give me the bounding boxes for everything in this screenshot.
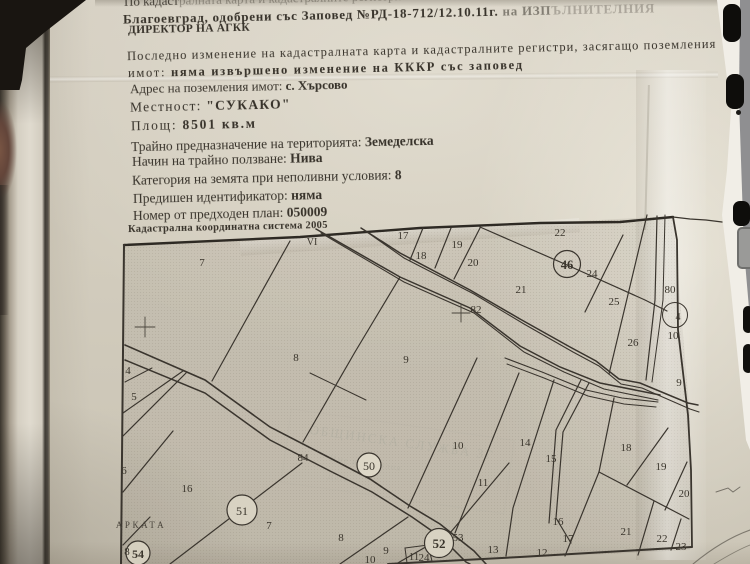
svg-text:10: 10 <box>453 440 465 452</box>
svg-text:4: 4 <box>125 365 131 377</box>
svg-text:17: 17 <box>398 230 410 242</box>
svg-text:21: 21 <box>621 526 632 538</box>
svg-text:19: 19 <box>452 239 464 251</box>
svg-text:8: 8 <box>124 546 130 558</box>
svg-text:19: 19 <box>656 461 668 473</box>
svg-text:8: 8 <box>293 352 299 364</box>
svg-text:20: 20 <box>468 257 480 269</box>
svg-text:25: 25 <box>609 296 621 308</box>
svg-text:46: 46 <box>561 258 574 272</box>
svg-text:11: 11 <box>409 551 420 563</box>
svg-text:18: 18 <box>416 250 428 262</box>
svg-text:9: 9 <box>676 377 682 389</box>
svg-text:17: 17 <box>563 533 575 545</box>
svg-text:9: 9 <box>403 354 409 366</box>
svg-text:АРКАТА: АРКАТА <box>116 520 166 530</box>
svg-text:15: 15 <box>546 453 558 465</box>
svg-text:24: 24 <box>587 268 599 280</box>
svg-text:VI: VI <box>307 237 318 248</box>
svg-text:53: 53 <box>453 532 465 544</box>
svg-text:82: 82 <box>471 304 482 316</box>
svg-text:20: 20 <box>679 488 691 500</box>
svg-text:11: 11 <box>478 477 489 489</box>
svg-text:6: 6 <box>121 465 127 477</box>
svg-text:10: 10 <box>365 554 377 564</box>
svg-text:8: 8 <box>338 532 344 544</box>
svg-text:10: 10 <box>668 330 680 342</box>
svg-text:80: 80 <box>665 284 677 296</box>
svg-text:4: 4 <box>676 312 681 323</box>
svg-text:13: 13 <box>488 544 500 556</box>
svg-text:22: 22 <box>657 533 668 545</box>
svg-text:52: 52 <box>433 536 446 551</box>
svg-text:18: 18 <box>621 442 633 454</box>
svg-text:12: 12 <box>537 547 548 559</box>
svg-text:22: 22 <box>555 227 566 239</box>
svg-text:54: 54 <box>132 547 144 561</box>
svg-text:26: 26 <box>628 337 640 349</box>
svg-text:16: 16 <box>182 483 194 495</box>
svg-text:84: 84 <box>298 452 310 464</box>
svg-text:Дата: Дата <box>327 471 350 484</box>
svg-text:7: 7 <box>199 257 205 269</box>
svg-text:5: 5 <box>131 391 137 403</box>
svg-text:21: 21 <box>516 284 527 296</box>
svg-text:51: 51 <box>236 504 248 518</box>
svg-text:14: 14 <box>520 437 532 449</box>
svg-text:7: 7 <box>266 520 272 532</box>
svg-text:23: 23 <box>676 541 688 553</box>
svg-text:50: 50 <box>363 459 375 473</box>
svg-text:24: 24 <box>419 552 431 564</box>
svg-text:16: 16 <box>553 516 565 528</box>
svg-text:9: 9 <box>383 545 389 557</box>
